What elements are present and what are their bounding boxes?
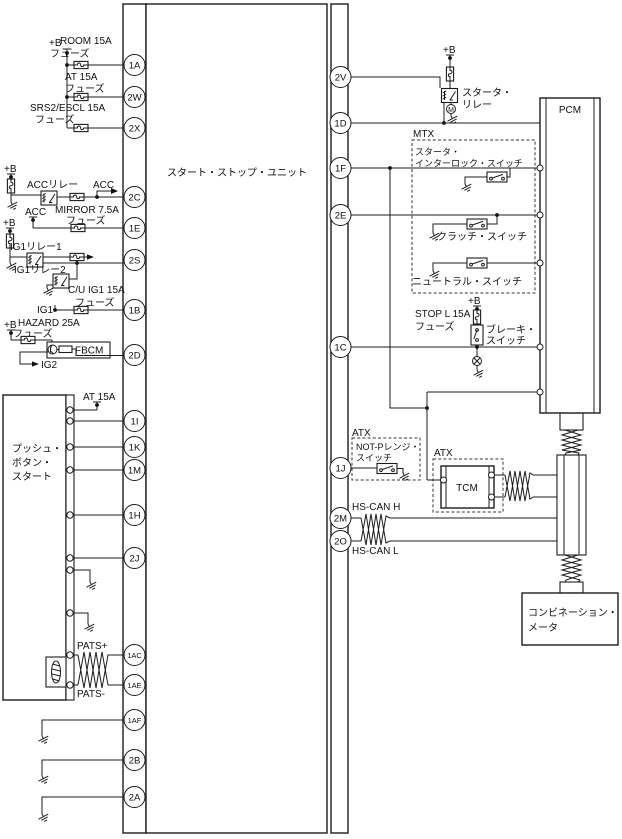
twisted-pair-icon — [562, 555, 581, 582]
pbs-label-1: プッシュ・ — [12, 443, 62, 455]
svg-text:1AC: 1AC — [127, 651, 142, 660]
svg-text:1H: 1H — [128, 511, 140, 522]
svg-text:1I: 1I — [131, 417, 139, 428]
mtx-label: MTX — [413, 129, 434, 140]
hs-can-l-label: HS-CAN L — [352, 546, 399, 557]
interlock-label-1: スタータ・ — [415, 147, 460, 157]
connector-2O: 2O — [330, 531, 351, 552]
connector-2V: 2V — [330, 67, 351, 88]
connector-1C: 1C — [330, 337, 351, 358]
connector-2D: 2D — [124, 345, 145, 366]
combination-meter: コンビネーション・ メータ — [522, 593, 618, 645]
ground-icon — [85, 579, 98, 591]
at-fuse-label: AT 15A — [65, 72, 98, 83]
neutral-switch-icon — [467, 258, 487, 268]
motor-letter: M — [448, 107, 454, 114]
starter-relay-fuse-icon — [446, 67, 453, 81]
acc-relay-label: ACCリレー — [27, 180, 78, 191]
ground-icon — [460, 181, 473, 193]
pbs-label-2: ボタン・ — [12, 457, 52, 469]
connector-2W: 2W — [124, 87, 145, 108]
stop-fuse-icon — [473, 310, 480, 324]
plus-b-label: +B — [4, 164, 17, 175]
combination-meter-box — [522, 593, 618, 645]
room-fuse-label: ROOM 15A — [60, 36, 112, 47]
plus-b-label: +B — [468, 296, 481, 307]
atx-label: ATX — [352, 428, 371, 439]
pbs-label-3: スタート — [12, 471, 52, 483]
wiring-diagram-canvas: スタート・ストップ・ユニット +B ROOM 15A フューズ AT 15A フ… — [0, 0, 622, 839]
pcm-box — [540, 98, 600, 413]
ground-icon — [83, 621, 96, 633]
meter-label-1: コンビネーション・ — [528, 607, 618, 619]
clutch-switch-label: クラッチ・スイッチ — [437, 231, 527, 243]
pcm-can-stub — [560, 413, 583, 430]
pcm: PCM — [537, 98, 600, 413]
svg-text:1D: 1D — [334, 119, 346, 130]
atx-label: ATX — [434, 448, 453, 459]
svg-text:2D: 2D — [128, 351, 140, 362]
ground-icon — [398, 470, 411, 482]
connector-1J: 1J — [330, 458, 351, 479]
meter-can-stub — [560, 582, 583, 593]
fuse-word: フューズ — [415, 320, 455, 333]
acc-source-label: ACC — [25, 207, 46, 218]
connector-1F: 1F — [330, 158, 351, 179]
brake-switch-icon — [471, 325, 483, 345]
connector-1D: 1D — [330, 113, 351, 134]
svg-text:2X: 2X — [129, 124, 141, 135]
acc-out-label: ACC — [93, 180, 114, 191]
svg-text:1A: 1A — [129, 61, 141, 72]
twisted-pair-icon — [562, 430, 581, 455]
ground-icon — [37, 811, 50, 823]
plus-b-label: +B — [3, 218, 16, 229]
clutch-switch-icon — [467, 219, 487, 229]
connector-2B: 2B — [124, 750, 145, 771]
svg-text:2M: 2M — [334, 514, 347, 525]
start-stop-unit: スタート・ストップ・ユニット — [123, 4, 348, 833]
brake-switch-circuit: +B STOP L 15A フューズ ブレーキ・ スイッチ — [351, 296, 540, 379]
ground-icon — [6, 199, 19, 211]
svg-text:1M: 1M — [128, 466, 141, 477]
brake-switch-label-1: ブレーキ・ — [486, 323, 536, 336]
notp-label-1: NOT-Pレンジ・ — [356, 442, 420, 452]
mirror-fuse-circuit: ACC MIRROR 7.5A フューズ — [25, 205, 124, 232]
wiring-diagram: スタート・ストップ・ユニット +B ROOM 15A フューズ AT 15A フ… — [0, 0, 622, 839]
cu-ig1-fuse-label: C/U IG1 15A — [68, 285, 125, 296]
plus-b-label: +B — [443, 45, 456, 56]
connector-2J: 2J — [124, 548, 145, 569]
notp-label-2: スイッチ — [356, 453, 392, 463]
svg-text:1AF: 1AF — [128, 716, 142, 725]
meter-label-2: メータ — [528, 622, 558, 634]
connector-2S: 2S — [124, 250, 145, 271]
room-fuse-icon — [74, 61, 88, 68]
battery-fuse-circuits: +B ROOM 15A フューズ AT 15A フューズ SRS2/ESCL 1… — [30, 36, 124, 132]
hs-can-h-label: HS-CAN H — [352, 502, 400, 513]
starter-relay-icon — [442, 89, 458, 103]
mirror-fuse-label: MIRROR 7.5A — [55, 205, 119, 216]
neutral-switch-label: ニュートラル・スイッチ — [412, 276, 522, 288]
connector-1K: 1K — [124, 437, 145, 458]
starter-relay-circuit: +B スタータ・ リレー M — [351, 45, 540, 125]
svg-text:1AE: 1AE — [127, 681, 141, 690]
svg-text:2E: 2E — [335, 211, 347, 222]
notp-switch-icon — [377, 464, 397, 474]
connector-1M: 1M — [124, 460, 145, 481]
svg-text:2A: 2A — [129, 793, 141, 804]
pcm-label: PCM — [559, 105, 581, 116]
svg-text:1B: 1B — [129, 306, 141, 317]
fuse-word: フューズ — [65, 82, 105, 95]
fbcm-label: FBCM — [75, 346, 103, 357]
twisted-pair-icon — [505, 471, 533, 501]
acc-out-fuse-icon — [70, 193, 84, 200]
connector-1A: 1A — [124, 55, 145, 76]
at-pbs-fuse-label: AT 15A — [83, 392, 116, 403]
starter-relay-label-1: スタータ・ — [462, 87, 512, 99]
connector-2A: 2A — [124, 787, 145, 808]
mtx-switch-group: MTX スタータ・ インターロック・スイッチ クラッチ・スイッチ ニュートラル・… — [351, 129, 540, 293]
twisted-pair-icon — [78, 652, 112, 688]
svg-text:2W: 2W — [127, 93, 141, 104]
ground-icon — [37, 733, 50, 745]
ig2-label: IG2 — [41, 360, 58, 371]
connector-1B: 1B — [124, 300, 145, 321]
ig1-source-label: IG1 — [37, 305, 54, 316]
twisted-pair-icon — [361, 514, 390, 545]
fbcm-circuit: +B HAZARD 25A フューズ FBCM IG2 — [4, 318, 124, 371]
unit-label: スタート・ストップ・ユニット — [167, 167, 307, 179]
unit-body — [146, 4, 327, 833]
srs2-fuse-icon — [74, 124, 88, 131]
ig1-relay2-icon — [53, 274, 69, 288]
ig2-arrow-icon — [32, 361, 39, 366]
connector-1AE: 1AE — [124, 675, 145, 696]
svg-text:1J: 1J — [335, 464, 345, 475]
connector-1I: 1I — [124, 411, 145, 432]
svg-text:1C: 1C — [334, 343, 346, 354]
fuse-word: フューズ — [66, 214, 106, 227]
pats-minus-label: PATS- — [77, 689, 105, 700]
svg-text:2O: 2O — [334, 537, 347, 548]
ig1-relay1-label: IG1リレー1 — [10, 242, 62, 253]
ground-icon — [37, 773, 50, 785]
svg-text:1F: 1F — [335, 164, 346, 175]
svg-text:2S: 2S — [129, 256, 141, 267]
starter-interlock-switch-icon — [487, 172, 507, 182]
ig1-arrow-icon — [87, 254, 94, 259]
connector-2X: 2X — [124, 118, 145, 139]
resistor-icon — [59, 346, 72, 353]
fuse-word: フューズ — [35, 113, 75, 126]
pats-plus-label: PATS+ — [77, 641, 108, 652]
acc-relay-fuse-icon — [7, 179, 14, 193]
svg-text:2J: 2J — [129, 554, 139, 565]
svg-text:2V: 2V — [335, 73, 347, 84]
ig1-out-fuse-icon — [70, 253, 84, 260]
svg-text:2B: 2B — [129, 756, 141, 767]
notp-switch-circuit: ATX NOT-Pレンジ・ スイッチ — [351, 428, 420, 482]
connector-2C: 2C — [124, 187, 145, 208]
srs2-fuse-label: SRS2/ESCL 15A — [30, 103, 106, 114]
ground-icon — [472, 367, 485, 379]
push-button-start-box — [3, 395, 66, 700]
hazard-fuse-label: HAZARD 25A — [18, 318, 80, 329]
connector-1H: 1H — [124, 505, 145, 526]
ground-icon — [446, 113, 459, 125]
connector-1E: 1E — [124, 218, 145, 239]
svg-text:1E: 1E — [129, 224, 141, 235]
connector-2E: 2E — [330, 205, 351, 226]
interlock-label-2: インターロック・スイッチ — [415, 159, 523, 169]
svg-text:2C: 2C — [128, 193, 140, 204]
fuse-word: フューズ — [50, 47, 90, 60]
push-button-start: プッシュ・ ボタン・ スタート AT 15A PATS+ PATS- — [3, 392, 124, 700]
brake-switch-label-2: スイッチ — [486, 335, 526, 347]
tcm-label: TCM — [456, 483, 478, 494]
hazard-fuse-icon — [21, 336, 35, 343]
starter-relay-label-2: リレー — [462, 100, 492, 111]
svg-text:1K: 1K — [129, 443, 141, 454]
acc-relay-icon — [41, 191, 57, 205]
unit-ground-lines — [37, 720, 124, 823]
connector-1AC: 1AC — [124, 645, 145, 666]
can-junction-box — [557, 455, 586, 555]
stop-fuse-label: STOP L 15A — [415, 309, 471, 320]
connector-1AF: 1AF — [124, 710, 145, 731]
cu-ig1-fuse-icon — [74, 306, 88, 313]
connector-2M: 2M — [330, 508, 351, 529]
